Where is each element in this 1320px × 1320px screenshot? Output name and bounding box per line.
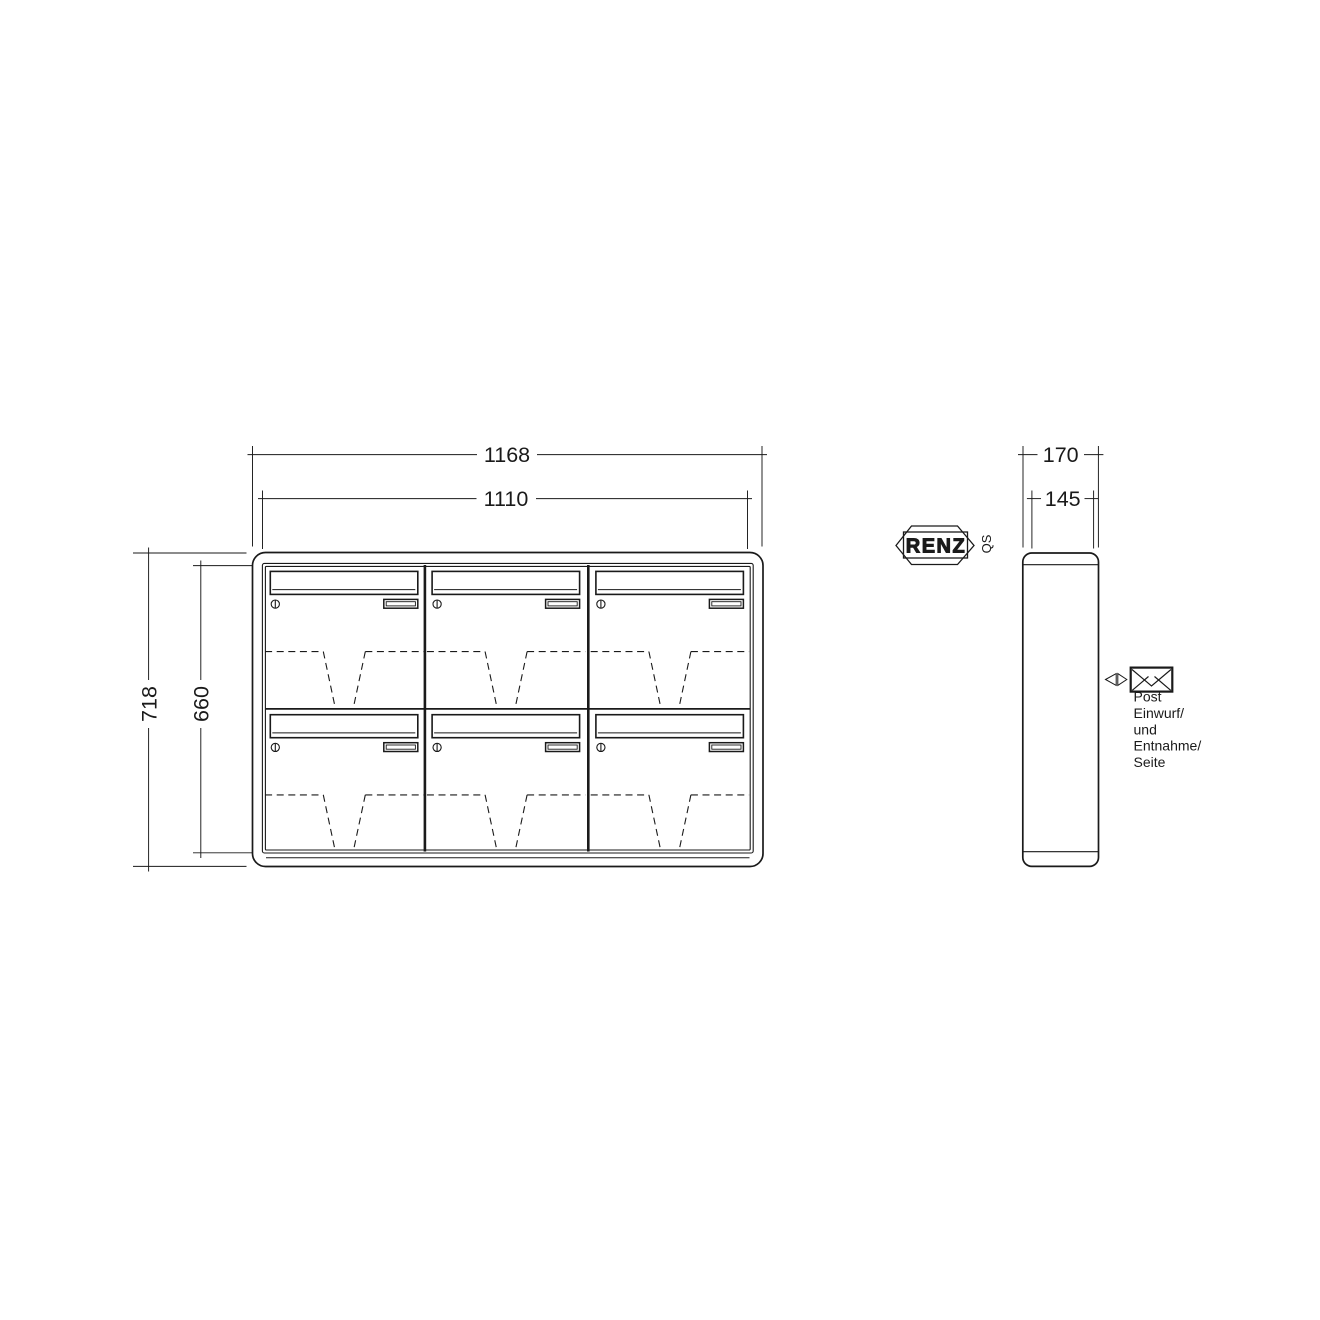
technical-drawing-canvas: 1168 1110 718 660	[0, 0, 1320, 1320]
mailbox-door-r1-c3	[591, 571, 749, 705]
dimension-width-inner: 1110	[258, 487, 752, 549]
dimension-label: 1110	[484, 487, 529, 511]
note-line-4: Entnahme/	[1134, 738, 1202, 754]
mailbox-door-r2-c2	[427, 715, 585, 849]
direction-arrows-icon	[1106, 674, 1127, 686]
dimension-label: 1168	[484, 443, 530, 467]
note-line-3: und	[1134, 721, 1157, 737]
mailbox-door-r2-c3	[591, 715, 749, 849]
mailbox-door-r2-c1	[265, 715, 423, 849]
mailbox-door-r1-c2	[427, 571, 585, 705]
letterbox-technical-drawing: 1168 1110 718 660	[0, 0, 1320, 1320]
front-view	[253, 553, 764, 867]
note-line-2: Einwurf/	[1134, 705, 1185, 721]
side-view-body	[1023, 553, 1099, 866]
renz-logo-label: RENZ	[906, 536, 966, 558]
mailbox-door-r1-c1	[265, 571, 423, 705]
renz-logo: RENZ	[896, 526, 974, 565]
note-line-1: Post	[1134, 689, 1162, 705]
dimension-height-inner: 660	[190, 561, 252, 859]
dimension-depth-inner: 145	[1027, 487, 1099, 548]
dimension-label: 145	[1045, 487, 1081, 511]
dimension-label: 718	[137, 686, 161, 722]
note-line-5: Seite	[1134, 754, 1166, 770]
side-view	[1023, 553, 1099, 866]
dimension-label: 170	[1043, 443, 1079, 467]
post-note: Post Einwurf/ und Entnahme/ Seite	[1106, 668, 1202, 771]
dimension-label: 660	[190, 686, 214, 722]
qs-label: QS	[979, 534, 994, 553]
